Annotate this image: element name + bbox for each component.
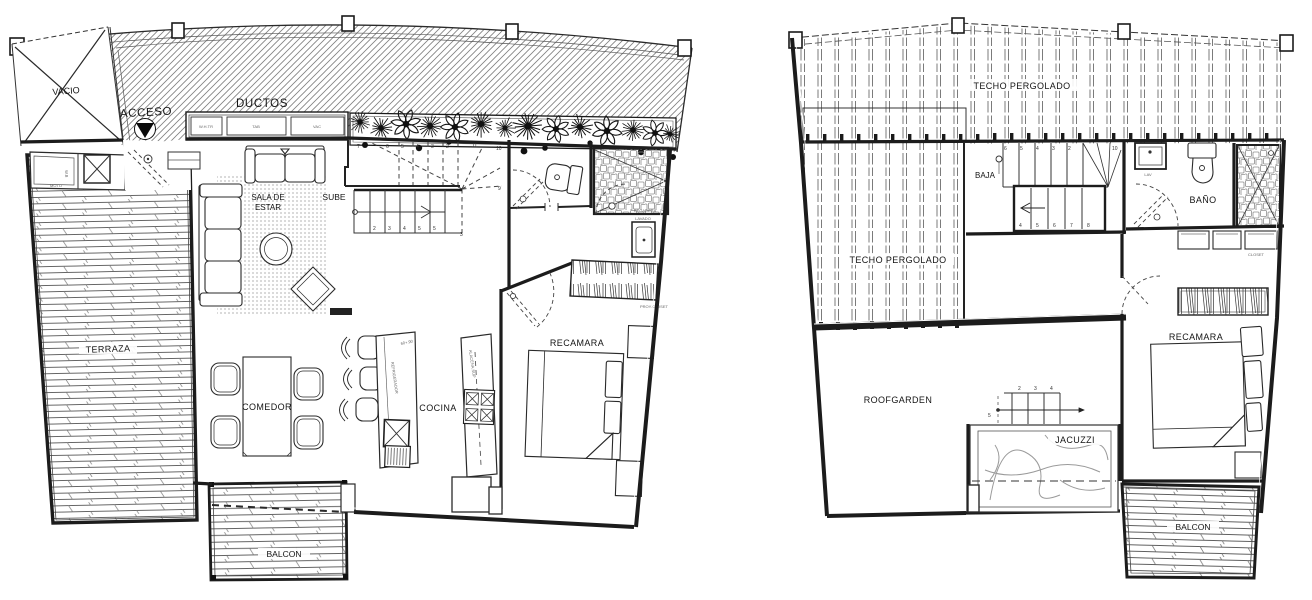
svg-text:SUBE: SUBE [322, 192, 345, 202]
svg-text:BALCON: BALCON [267, 549, 302, 559]
svg-text:RECAMARA: RECAMARA [550, 338, 604, 348]
svg-text:8: 8 [1087, 223, 1090, 229]
svg-text:6: 6 [386, 144, 389, 150]
svg-text:BALCON: BALCON [1176, 522, 1211, 532]
svg-text:4: 4 [1050, 386, 1053, 392]
svg-text:W.B: W.B [64, 170, 69, 178]
svg-text:2: 2 [1068, 146, 1071, 152]
svg-text:TECHO PERGOLADO: TECHO PERGOLADO [849, 255, 946, 265]
svg-text:VACIO: VACIO [52, 85, 80, 97]
svg-text:COCINA: COCINA [419, 403, 456, 413]
svg-text:4: 4 [1019, 223, 1022, 229]
svg-text:4: 4 [1036, 146, 1039, 152]
svg-text:5: 5 [418, 226, 421, 232]
svg-text:7: 7 [357, 144, 360, 150]
svg-text:JACUZZI: JACUZZI [1055, 435, 1095, 445]
svg-text:2: 2 [1018, 386, 1021, 392]
svg-text:2: 2 [373, 226, 376, 232]
svg-text:9: 9 [498, 186, 501, 192]
svg-text:10: 10 [496, 146, 502, 152]
svg-text:PROY.CLOSET: PROY.CLOSET [640, 304, 668, 309]
svg-text:REGADERA: REGADERA [634, 208, 657, 213]
svg-text:3: 3 [388, 226, 391, 232]
svg-text:BAJA: BAJA [975, 171, 996, 180]
svg-text:7: 7 [1070, 223, 1073, 229]
svg-text:5: 5 [401, 144, 404, 150]
svg-text:VAC: VAC [313, 124, 321, 129]
svg-text:LAV: LAV [1144, 172, 1152, 177]
svg-text:3: 3 [431, 144, 434, 150]
svg-text:5: 5 [1036, 223, 1039, 229]
svg-text:W.H.TR: W.H.TR [199, 124, 213, 129]
svg-text:3: 3 [460, 232, 463, 238]
svg-text:DUCTOS: DUCTOS [236, 98, 288, 110]
svg-text:SALA DE: SALA DE [251, 193, 284, 202]
svg-text:ESTAR: ESTAR [255, 203, 281, 212]
svg-text:5: 5 [988, 413, 991, 419]
svg-text:LAVADO: LAVADO [635, 216, 651, 221]
svg-text:4: 4 [403, 226, 406, 232]
svg-text:COMEDOR: COMEDOR [242, 402, 292, 412]
svg-text:2: 2 [446, 144, 449, 150]
svg-text:3: 3 [1034, 386, 1037, 392]
svg-text:TERRAZA: TERRAZA [85, 343, 130, 355]
svg-text:6: 6 [1053, 223, 1056, 229]
svg-text:ROOFGARDEN: ROOFGARDEN [864, 395, 933, 405]
svg-text:BAÑO: BAÑO [1189, 195, 1216, 205]
svg-text:10: 10 [1112, 146, 1118, 152]
svg-text:6: 6 [1004, 146, 1007, 152]
svg-text:3: 3 [1052, 146, 1055, 152]
svg-text:RECAMARA: RECAMARA [1169, 332, 1223, 342]
svg-text:TAB: TAB [252, 124, 260, 129]
svg-text:TECHO PERGOLADO: TECHO PERGOLADO [973, 81, 1070, 91]
svg-text:5: 5 [1020, 146, 1023, 152]
svg-text:CLOSET: CLOSET [1248, 252, 1265, 257]
svg-text:MOTO: MOTO [50, 183, 62, 188]
svg-text:5: 5 [433, 226, 436, 232]
svg-text:4: 4 [416, 144, 419, 150]
svg-text:11: 11 [472, 143, 477, 149]
